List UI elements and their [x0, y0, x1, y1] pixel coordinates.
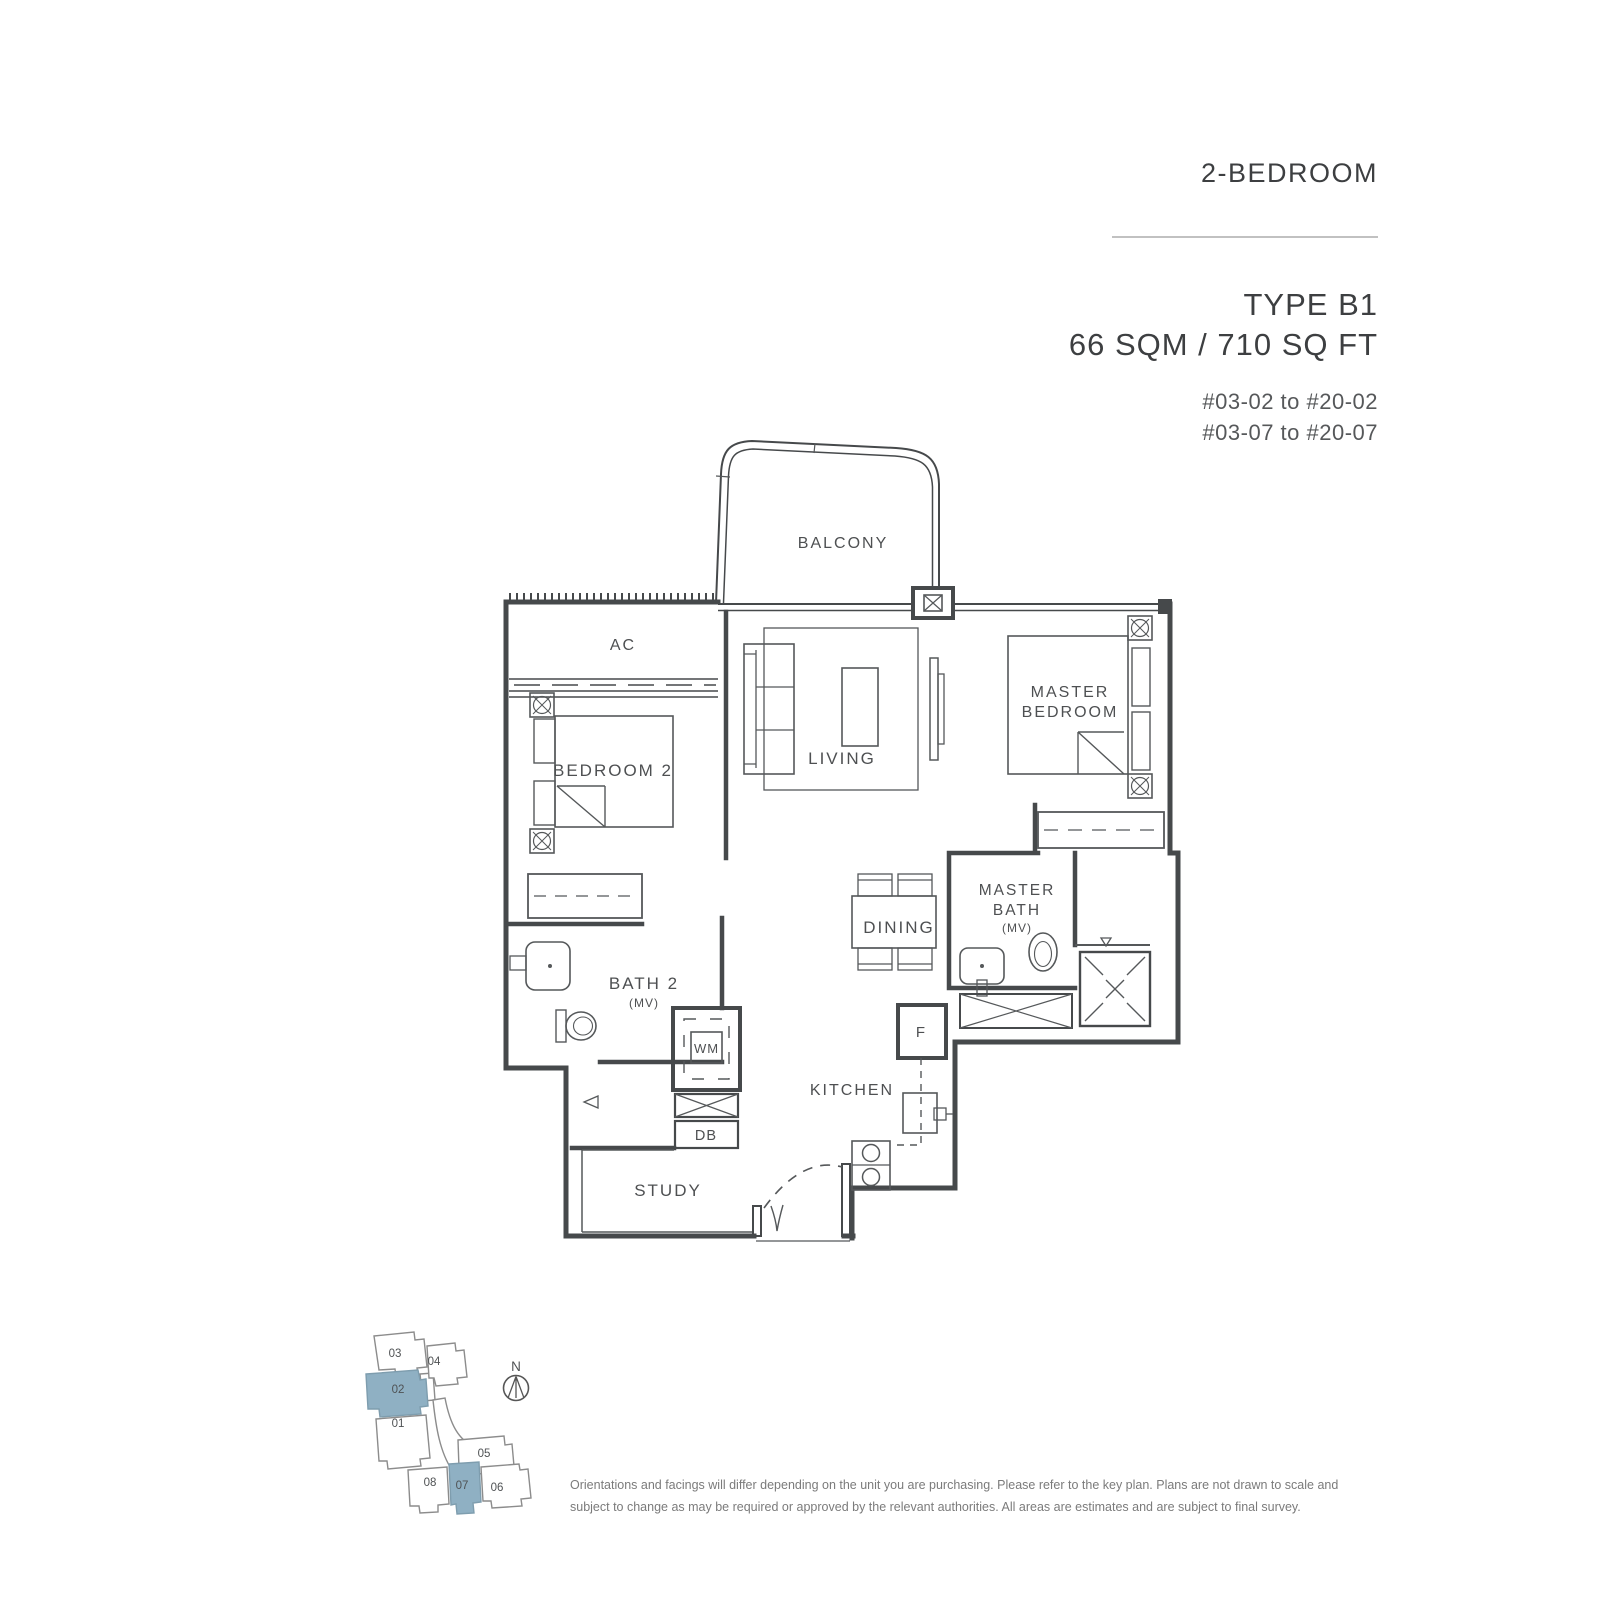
keyplan-unit-05-label: 05: [478, 1448, 491, 1460]
room-labels: BALCONY AC BEDROOM 2 LIVING MASTER BEDRO…: [553, 535, 1118, 1200]
floorplan-drawing: BALCONY AC BEDROOM 2 LIVING MASTER BEDRO…: [0, 0, 1600, 1600]
fridge-label: F: [916, 1024, 926, 1041]
keyplan-unit-04-label: 04: [428, 1356, 441, 1368]
north-label: N: [511, 1359, 521, 1374]
entrance-door: [753, 1164, 850, 1236]
keyplan-unit-06: [481, 1464, 531, 1508]
master-bath-label-line1: MASTER: [979, 882, 1056, 899]
fancoil-icon: [530, 829, 554, 853]
washing-machine-label: WM: [694, 1041, 719, 1056]
bath2-label: BATH 2: [609, 974, 679, 993]
fancoil-icon: [530, 693, 554, 717]
vanity-ledge: [960, 994, 1072, 1028]
structural-column: [913, 588, 953, 618]
keyplan-unit-08-label: 08: [424, 1477, 437, 1489]
duct-box: [675, 1094, 738, 1117]
kitchen-label: KITCHEN: [810, 1082, 894, 1099]
disclaimer-line-1: Orientations and facings will differ dep…: [570, 1474, 1338, 1496]
study-label: STUDY: [634, 1181, 702, 1200]
master-bedroom-label-line1: MASTER: [1031, 684, 1110, 701]
master-bath-label-line2: BATH: [993, 902, 1041, 919]
window-walls: [509, 599, 1172, 697]
shower-stall: [1080, 952, 1150, 1026]
keyplan-unit-08: [408, 1467, 449, 1513]
bedroom2-furniture: [528, 693, 673, 918]
keyplan-unit-06-label: 06: [491, 1482, 504, 1494]
balcony-label: BALCONY: [798, 535, 888, 552]
ac-label: AC: [610, 637, 636, 654]
keyplan-unit-07-label: 07: [456, 1480, 469, 1492]
keyplan-unit-03-label: 03: [389, 1348, 402, 1360]
balcony-outline: [716, 441, 939, 603]
keyplan-unit-01-label: 01: [392, 1418, 405, 1430]
master-bedroom-label-line2: BEDROOM: [1022, 704, 1119, 721]
bedroom2-label: BEDROOM 2: [553, 761, 673, 780]
floorplan-page: 2-BEDROOM TYPE B1 66 SQM / 710 SQ FT #03…: [0, 0, 1600, 1600]
fancoil-icon: [1128, 774, 1152, 798]
north-compass-icon: N: [504, 1359, 529, 1401]
fancoil-icon: [1128, 616, 1152, 640]
master-bedroom-furniture: [1008, 616, 1164, 848]
master-bath-mv-label: (MV): [1002, 921, 1032, 935]
bath2-fixtures: [510, 942, 598, 1108]
dining-label: DINING: [863, 918, 935, 937]
bath2-mv-label: (MV): [629, 996, 659, 1010]
disclaimer-line-2: subject to change as may be required or …: [570, 1496, 1301, 1518]
db-label: DB: [695, 1128, 717, 1144]
living-label: LIVING: [808, 749, 876, 768]
keyplan-unit-02-label: 02: [392, 1384, 405, 1396]
